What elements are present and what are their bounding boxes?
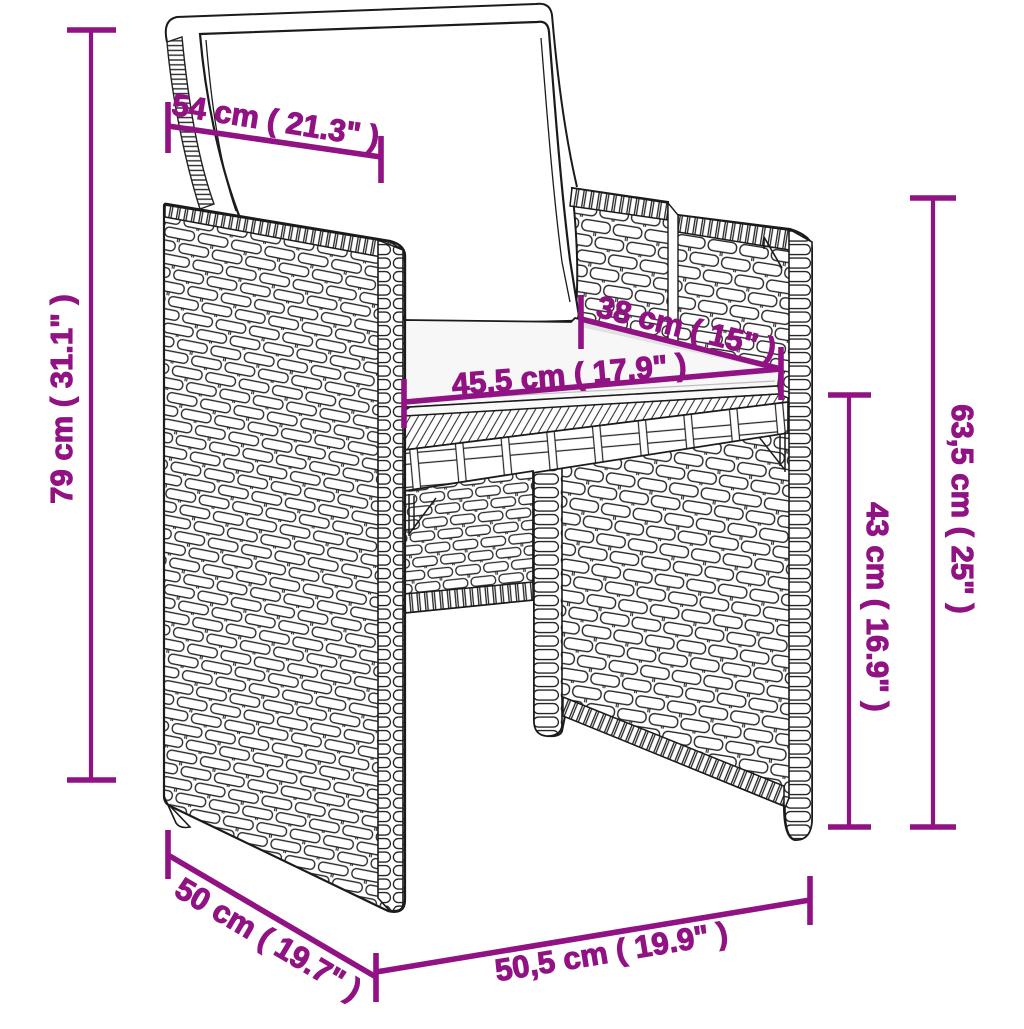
svg-text:43 cm ( 16.9" ): 43 cm ( 16.9" ) <box>860 502 895 711</box>
svg-text:63,5 cm ( 25" ): 63,5 cm ( 25" ) <box>945 404 980 613</box>
svg-text:79 cm ( 31.1" ): 79 cm ( 31.1" ) <box>44 294 79 503</box>
